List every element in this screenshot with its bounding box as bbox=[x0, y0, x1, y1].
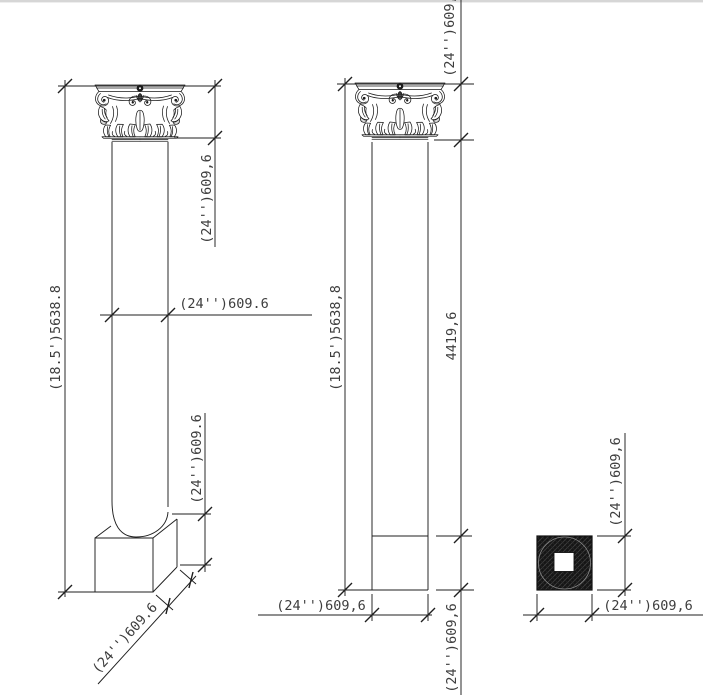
dim-plan-depth: (24'')609,6 bbox=[608, 437, 624, 526]
corinthian-capital bbox=[355, 83, 445, 139]
dim-left-capital-height: (24'')609,6 bbox=[199, 154, 215, 243]
dim-middle-shaft-height: 4419,6 bbox=[444, 312, 460, 361]
dim-plan-width: (24'')609,6 bbox=[603, 598, 692, 614]
column-detail-drawing: (18.5')5638.8 (24'')609,6 (24'')609.6 (2… bbox=[0, 0, 703, 695]
column-plan-section: (24'')609,6 (24'')609,6 bbox=[523, 433, 703, 622]
base-torus bbox=[112, 501, 168, 537]
dim-left-base-height: (24'')609.6 bbox=[189, 414, 205, 503]
dimension-lines bbox=[98, 570, 196, 684]
window-top-edge bbox=[0, 0, 703, 2]
corinthian-capital bbox=[95, 85, 185, 141]
dim-middle-base-width: (24'')609,6 bbox=[276, 598, 365, 614]
column-shaft bbox=[112, 142, 168, 507]
dim-left-overall-height: (18.5')5638.8 bbox=[48, 285, 64, 391]
center-core-hole bbox=[554, 553, 574, 572]
dim-middle-capital-height: (24'')609,6 bbox=[442, 0, 458, 77]
base-plinth bbox=[95, 519, 177, 592]
dim-left-base-diagonal: (24'')609.6 bbox=[89, 600, 161, 677]
dim-middle-overall-height: (18.5')5638,8 bbox=[328, 285, 344, 391]
middle-column-elevation: (18.5')5638,8 (24'')609,6 4419,6 (24'')6… bbox=[258, 0, 474, 695]
dim-middle-base-height: (24'')609,6 bbox=[444, 603, 460, 692]
left-column-elevation: (18.5')5638.8 (24'')609,6 (24'')609.6 (2… bbox=[48, 79, 312, 684]
dimension-lines bbox=[58, 80, 221, 597]
dim-left-shaft-diameter: (24'')609.6 bbox=[179, 296, 268, 312]
cad-canvas: (18.5')5638.8 (24'')609,6 (24'')609.6 (2… bbox=[0, 0, 703, 695]
column-shaft bbox=[338, 142, 428, 590]
